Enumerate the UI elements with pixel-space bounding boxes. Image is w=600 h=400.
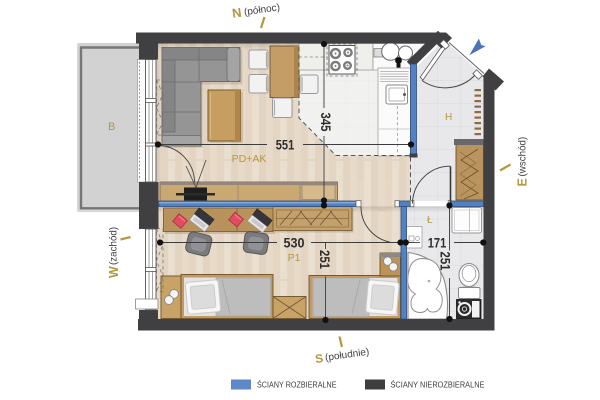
svg-text:ŚCIANY NIEROZBIERALNE: ŚCIANY NIEROZBIERALNE — [391, 378, 485, 389]
svg-text:P1: P1 — [288, 252, 301, 264]
svg-text:251: 251 — [438, 252, 454, 271]
svg-text:530: 530 — [284, 235, 305, 251]
svg-text:H: H — [445, 112, 452, 123]
svg-text:ŚCIANY ROZBIERALNE: ŚCIANY ROZBIERALNE — [257, 378, 337, 389]
svg-text:B: B — [108, 121, 115, 133]
svg-text:PD+AK: PD+AK — [232, 153, 267, 165]
svg-text:W: W — [107, 266, 121, 278]
svg-text:551: 551 — [276, 137, 295, 153]
svg-text:(wschód): (wschód) — [518, 137, 529, 177]
svg-text:345: 345 — [318, 113, 334, 132]
svg-text:(zachód): (zachód) — [109, 227, 120, 265]
svg-text:251: 251 — [317, 250, 333, 269]
svg-text:E: E — [516, 178, 530, 186]
svg-text:Ł: Ł — [427, 215, 433, 226]
svg-text:171: 171 — [428, 235, 447, 251]
